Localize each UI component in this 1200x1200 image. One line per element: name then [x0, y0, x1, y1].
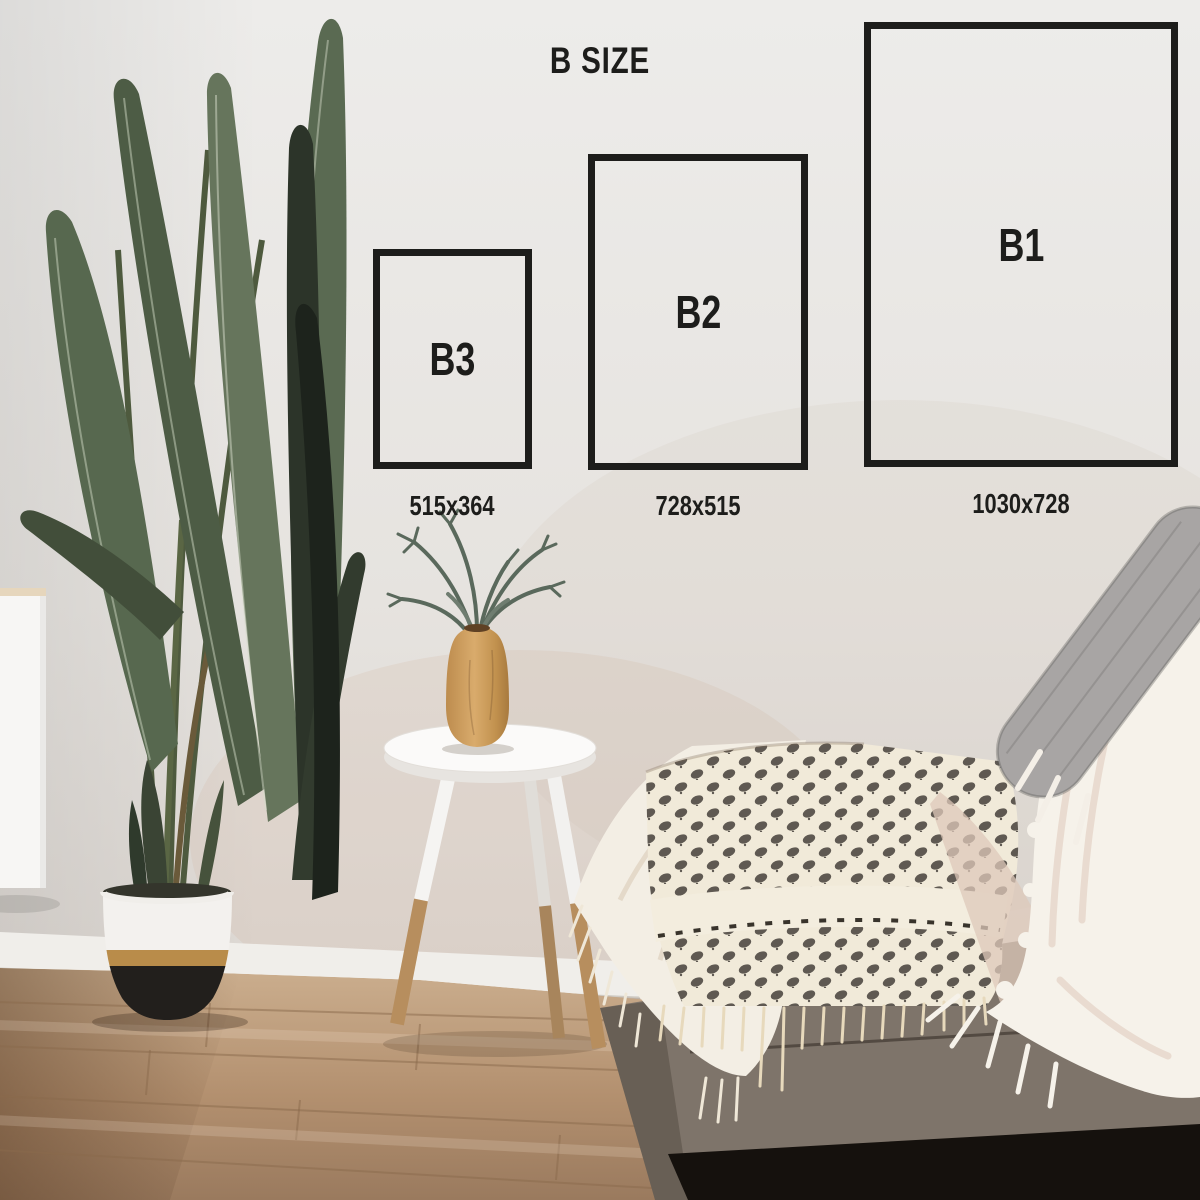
size-label-b1: B1 — [998, 222, 1044, 268]
size-label-b2: B2 — [675, 289, 721, 335]
size-diagram-overlay: B SIZE B3 B2 B1 515x364 728x515 1030x728 — [0, 0, 1200, 1200]
size-dimensions-b2: 728x515 — [655, 492, 740, 520]
size-dimensions-b3: 515x364 — [409, 492, 494, 520]
size-dimensions-b1: 1030x728 — [972, 490, 1069, 518]
diagram-title: B SIZE — [550, 42, 650, 79]
size-label-b3: B3 — [430, 336, 476, 382]
room-photo: B SIZE B3 B2 B1 515x364 728x515 1030x728 — [0, 0, 1200, 1200]
size-box-b1: B1 — [864, 22, 1178, 467]
size-box-b2: B2 — [588, 154, 808, 470]
size-box-b3: B3 — [373, 249, 532, 469]
